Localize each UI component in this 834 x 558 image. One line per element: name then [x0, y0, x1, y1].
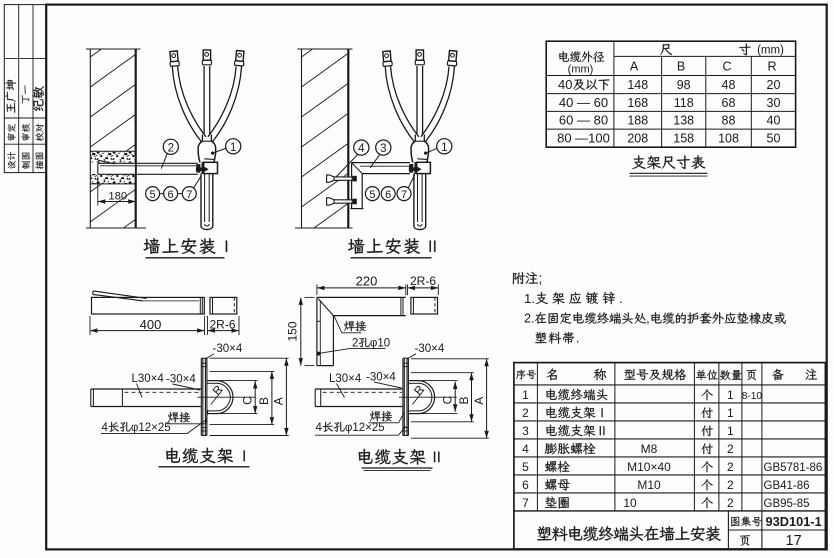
svg-text:4: 4	[316, 422, 323, 434]
svg-text:6: 6	[522, 478, 529, 492]
svg-text:108: 108	[718, 131, 739, 145]
svg-text:C: C	[722, 59, 731, 73]
svg-text:1: 1	[727, 406, 734, 420]
svg-text:17: 17	[786, 533, 802, 549]
svg-text:400: 400	[140, 317, 162, 332]
svg-text:6: 6	[385, 189, 391, 201]
svg-text:2: 2	[352, 337, 358, 349]
svg-text:C: C	[241, 396, 255, 405]
svg-text:.: .	[576, 330, 580, 345]
svg-text:C: C	[441, 395, 455, 404]
svg-text:1: 1	[727, 388, 734, 402]
svg-text:;: ;	[539, 271, 543, 286]
svg-text:-30×4: -30×4	[415, 343, 445, 355]
svg-text:M10×40: M10×40	[627, 460, 671, 474]
svg-text:68: 68	[722, 96, 736, 110]
svg-text:118: 118	[674, 96, 694, 110]
svg-text:1.: 1.	[524, 291, 535, 306]
svg-text:148: 148	[627, 78, 648, 92]
svg-text:188: 188	[627, 114, 648, 128]
svg-text:10: 10	[623, 496, 637, 510]
svg-text:GB5781-86: GB5781-86	[764, 462, 823, 474]
svg-text:40: 40	[767, 114, 781, 128]
svg-text:B: B	[677, 59, 685, 73]
svg-text:2: 2	[727, 442, 734, 456]
svg-text:60 — 80: 60 — 80	[559, 113, 608, 128]
svg-text:3: 3	[522, 424, 529, 438]
svg-text:2: 2	[727, 496, 734, 510]
svg-text:20: 20	[767, 78, 781, 92]
svg-text:B: B	[257, 397, 271, 405]
svg-text:,: ,	[646, 312, 650, 326]
svg-text:M10: M10	[637, 478, 661, 492]
svg-text:30×4: 30×4	[335, 373, 362, 385]
svg-text:7: 7	[186, 189, 192, 201]
svg-text:GB41-86: GB41-86	[764, 480, 810, 492]
svg-text:A: A	[630, 59, 639, 73]
svg-text:40: 40	[558, 77, 572, 92]
svg-text:2: 2	[727, 460, 734, 474]
svg-text:168: 168	[627, 96, 648, 110]
svg-text:220: 220	[356, 273, 378, 288]
svg-text:-30×4: -30×4	[213, 343, 243, 355]
svg-text:L30×4: L30×4	[132, 373, 165, 385]
svg-text:4: 4	[522, 442, 529, 456]
svg-text:B: B	[457, 396, 471, 404]
svg-text:80 —100: 80 —100	[557, 130, 610, 145]
svg-text:98: 98	[677, 78, 691, 92]
svg-text:4: 4	[358, 143, 365, 155]
svg-text:A: A	[472, 397, 486, 405]
svg-text:150: 150	[286, 321, 300, 341]
svg-text:6: 6	[168, 189, 174, 201]
svg-text:2.: 2.	[524, 312, 535, 326]
svg-text:5: 5	[150, 189, 156, 201]
svg-text:208: 208	[627, 131, 648, 145]
svg-text:138: 138	[673, 114, 694, 128]
svg-text:1: 1	[522, 388, 529, 402]
svg-text:.: .	[619, 291, 623, 306]
svg-text:φ12×25: φ12×25	[131, 422, 171, 434]
svg-text:40 — 60: 40 — 60	[559, 95, 608, 110]
svg-text:A: A	[272, 397, 286, 405]
svg-text:93D101-1: 93D101-1	[765, 514, 821, 529]
svg-text:5: 5	[522, 460, 529, 474]
svg-text:(mm): (mm)	[568, 64, 594, 76]
svg-text:8-10: 8-10	[742, 391, 763, 402]
svg-text:4: 4	[102, 422, 109, 434]
svg-text:2R-6: 2R-6	[410, 274, 436, 288]
svg-text:1: 1	[727, 424, 734, 438]
svg-text:48: 48	[722, 78, 736, 92]
svg-text:88: 88	[722, 114, 736, 128]
svg-text:-30×4: -30×4	[166, 373, 196, 385]
svg-text:2: 2	[522, 406, 529, 420]
svg-text:5: 5	[369, 189, 375, 201]
svg-text:GB95-85: GB95-85	[764, 498, 810, 510]
svg-text:7: 7	[522, 496, 529, 510]
svg-text:M8: M8	[641, 442, 658, 456]
svg-text:2: 2	[168, 142, 174, 154]
svg-text:2: 2	[727, 478, 734, 492]
svg-text:1: 1	[230, 142, 236, 154]
svg-text:7: 7	[401, 189, 407, 201]
svg-text:3: 3	[380, 143, 386, 155]
svg-text:φ12×25: φ12×25	[345, 422, 385, 434]
svg-text:30: 30	[767, 96, 781, 110]
svg-text:2R-6: 2R-6	[209, 318, 235, 332]
svg-text:180: 180	[108, 190, 127, 202]
svg-text:1: 1	[441, 142, 447, 154]
svg-text:(mm): (mm)	[757, 45, 784, 57]
svg-text:158: 158	[673, 131, 694, 145]
svg-text:-30×4: -30×4	[366, 371, 396, 383]
svg-text:R: R	[767, 59, 776, 73]
svg-text:φ10: φ10	[370, 337, 390, 349]
svg-text:50: 50	[767, 131, 781, 145]
